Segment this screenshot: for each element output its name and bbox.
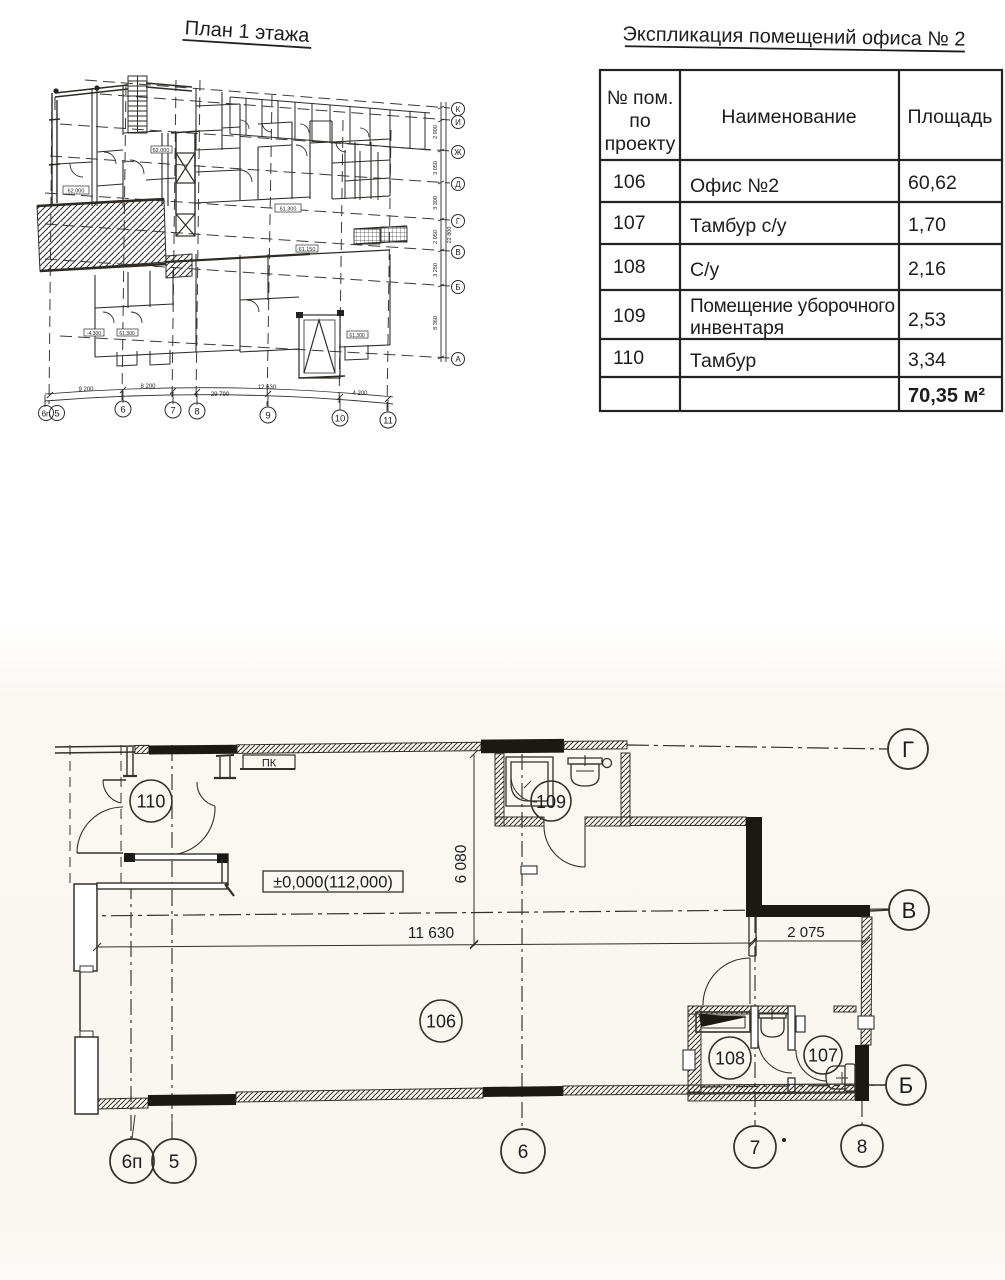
svg-text:5: 5 <box>169 1152 180 1173</box>
svg-text:Г: Г <box>456 217 461 226</box>
svg-text:8: 8 <box>857 1137 868 1158</box>
svg-text:109: 109 <box>613 305 646 327</box>
svg-text:22 800: 22 800 <box>447 227 453 244</box>
svg-text:С/у: С/у <box>690 259 720 281</box>
svg-text:70,35 м²: 70,35 м² <box>908 385 985 407</box>
svg-text:61.300: 61.300 <box>119 331 135 337</box>
svg-text:±0,000(112,000): ±0,000(112,000) <box>273 874 393 892</box>
svg-text:110: 110 <box>613 347 644 369</box>
svg-text:11 630: 11 630 <box>408 925 455 942</box>
svg-text:Б: Б <box>899 1073 913 1098</box>
svg-text:8 200: 8 200 <box>140 384 156 390</box>
svg-text:29 790: 29 790 <box>211 392 230 398</box>
svg-text:К: К <box>456 105 461 114</box>
svg-text:6 080: 6 080 <box>453 844 470 883</box>
svg-text:2 050: 2 050 <box>433 230 439 244</box>
svg-text:61.300: 61.300 <box>349 333 365 339</box>
svg-text:109: 109 <box>536 792 566 812</box>
svg-text:по: по <box>629 110 651 132</box>
svg-text:1,70: 1,70 <box>908 214 946 236</box>
svg-text:Б: Б <box>455 283 460 292</box>
svg-text:В: В <box>455 248 460 257</box>
svg-text:-4.300: -4.300 <box>87 331 101 337</box>
svg-text:106: 106 <box>613 171 646 193</box>
svg-text:3 300: 3 300 <box>433 196 439 210</box>
svg-text:А: А <box>455 355 461 364</box>
svg-text:Тамбур: Тамбур <box>690 350 756 372</box>
svg-text:6п: 6п <box>122 1152 143 1173</box>
svg-text:2,16: 2,16 <box>908 258 946 280</box>
svg-text:ПК: ПК <box>262 758 277 770</box>
svg-text:2 075: 2 075 <box>787 924 825 941</box>
svg-text:8 360: 8 360 <box>433 316 439 330</box>
svg-text:107: 107 <box>613 212 646 234</box>
svg-text:61.300: 61.300 <box>280 207 297 213</box>
svg-text:3 250: 3 250 <box>433 263 439 277</box>
svg-text:107: 107 <box>808 1046 838 1066</box>
svg-text:Площадь: Площадь <box>908 106 993 128</box>
svg-text:Г: Г <box>902 737 914 762</box>
svg-text:2 900: 2 900 <box>433 125 439 139</box>
svg-text:Тамбур с/у: Тамбур с/у <box>690 215 787 237</box>
svg-text:10: 10 <box>335 414 346 425</box>
svg-text:61.150: 61.150 <box>299 247 316 253</box>
svg-text:7: 7 <box>170 406 175 417</box>
svg-text:9 200: 9 200 <box>78 387 94 393</box>
svg-text:Наименование: Наименование <box>721 106 856 128</box>
svg-text:62.000: 62.000 <box>68 189 85 195</box>
svg-text:8: 8 <box>194 407 199 418</box>
svg-text:3,34: 3,34 <box>908 349 946 371</box>
svg-text:№ пом.: № пом. <box>607 87 674 109</box>
svg-text:5: 5 <box>54 409 59 420</box>
svg-text:инвентаря: инвентаря <box>690 317 784 339</box>
svg-text:4 200: 4 200 <box>352 391 368 397</box>
svg-text:Д: Д <box>455 180 461 189</box>
svg-text:6: 6 <box>120 405 125 416</box>
svg-text:108: 108 <box>715 1049 745 1069</box>
svg-text:108: 108 <box>613 256 646 278</box>
svg-text:12 630: 12 630 <box>258 385 277 391</box>
svg-text:Офис №2: Офис №2 <box>690 175 779 197</box>
svg-text:62.000: 62.000 <box>153 148 170 154</box>
svg-text:Помещение уборочного: Помещение уборочного <box>690 296 895 317</box>
svg-text:И: И <box>455 118 461 127</box>
svg-text:3 050: 3 050 <box>433 161 439 175</box>
svg-text:60,62: 60,62 <box>908 172 957 194</box>
svg-text:6: 6 <box>518 1142 529 1163</box>
svg-text:Ж: Ж <box>454 148 462 157</box>
svg-text:В: В <box>902 898 917 923</box>
svg-text:2,53: 2,53 <box>908 309 946 331</box>
svg-text:проекту: проекту <box>605 133 676 155</box>
svg-text:9: 9 <box>265 411 270 422</box>
svg-text:110: 110 <box>137 792 166 812</box>
svg-text:106: 106 <box>426 1012 456 1032</box>
svg-text:11: 11 <box>383 416 393 427</box>
svg-text:7: 7 <box>750 1138 761 1159</box>
